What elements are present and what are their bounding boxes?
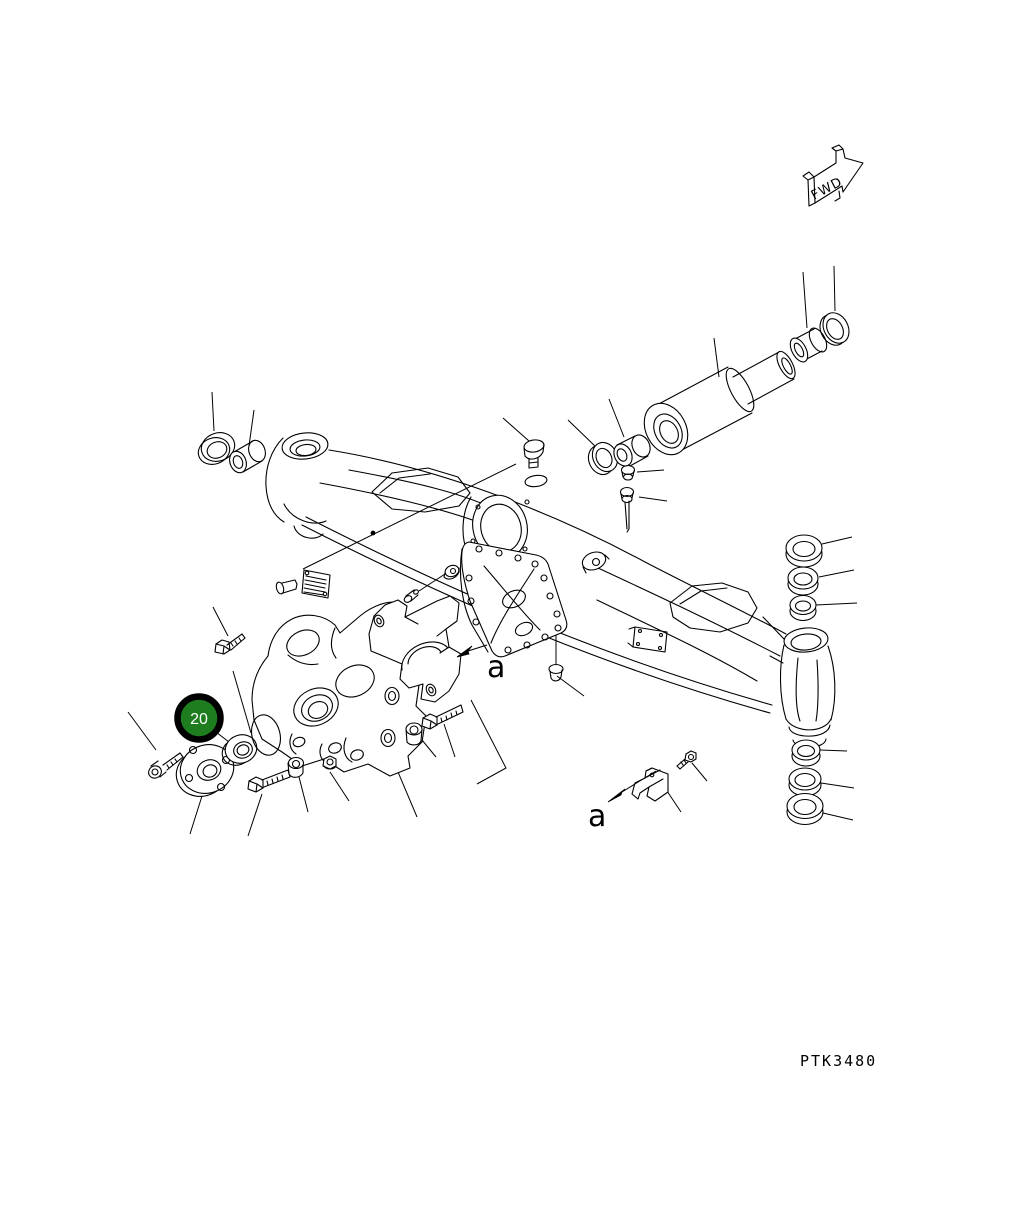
hex-plug-small <box>323 756 336 769</box>
tube-seal-ring <box>815 308 854 350</box>
leader-line <box>714 338 719 377</box>
leader-line <box>212 392 214 431</box>
parts-diagram-page: a a FWD 20 PTK3480 <box>0 0 1022 1219</box>
leader-line <box>823 813 853 820</box>
leader-line <box>503 418 529 441</box>
arrowhead <box>608 789 625 802</box>
leader-line <box>190 796 202 834</box>
leader-line <box>609 399 624 437</box>
leader-line <box>822 537 852 544</box>
leader-line <box>422 740 436 757</box>
leader-line <box>816 603 857 605</box>
breather-plug <box>622 466 635 481</box>
filler-plug-bolt <box>523 439 544 468</box>
leader-line <box>819 570 854 577</box>
leader-line <box>330 772 349 801</box>
mounting-bracket <box>632 768 668 801</box>
drawing-code: PTK3480 <box>800 1052 877 1070</box>
leader-line <box>639 497 667 501</box>
serial-plate <box>302 570 330 598</box>
cover-hex-bolt-top <box>215 634 245 654</box>
leader-dot <box>371 531 375 535</box>
leader-line <box>568 420 597 448</box>
leader-line <box>213 607 228 636</box>
drain-plug <box>549 665 563 681</box>
leader-line <box>821 783 854 788</box>
washer-nut <box>444 563 461 579</box>
exploded-view-drawing: a a FWD 20 PTK3480 <box>0 0 1022 1219</box>
long-bolt-right <box>422 705 463 729</box>
leader-line <box>692 763 707 781</box>
leader-line <box>820 750 847 751</box>
leader-line <box>444 724 455 757</box>
leader-line <box>233 671 251 733</box>
arrowhead <box>457 646 472 657</box>
balloon-number: 20 <box>190 711 208 728</box>
leader-line <box>248 794 262 836</box>
leader-line <box>299 777 308 812</box>
leader-line <box>637 470 664 472</box>
bleeder-screw <box>621 488 634 533</box>
leader-line <box>834 266 835 311</box>
top-oval-hole <box>524 474 547 488</box>
leader-line <box>667 791 681 812</box>
leader-line <box>128 712 156 750</box>
part-callout-balloon-20[interactable]: 20 <box>178 697 221 740</box>
leader-line <box>803 272 807 328</box>
long-bolt-left <box>248 770 290 792</box>
fwd-direction-arrow: FWD <box>803 145 863 206</box>
view-arrow-a-upper: a <box>457 645 505 685</box>
spacer-bushing <box>288 758 304 778</box>
kingpin-seal-rings-upper <box>786 535 822 621</box>
tow-lug <box>580 549 609 573</box>
leader-line <box>471 700 506 784</box>
view-label-a-lower: a <box>588 799 606 834</box>
cap-screw-small <box>403 589 419 604</box>
kingpin-seal-rings-lower <box>787 740 823 825</box>
drive-screw <box>275 580 297 595</box>
bracket-screw <box>677 751 696 769</box>
leader-line <box>557 676 584 696</box>
view-label-a-upper: a <box>487 650 505 685</box>
